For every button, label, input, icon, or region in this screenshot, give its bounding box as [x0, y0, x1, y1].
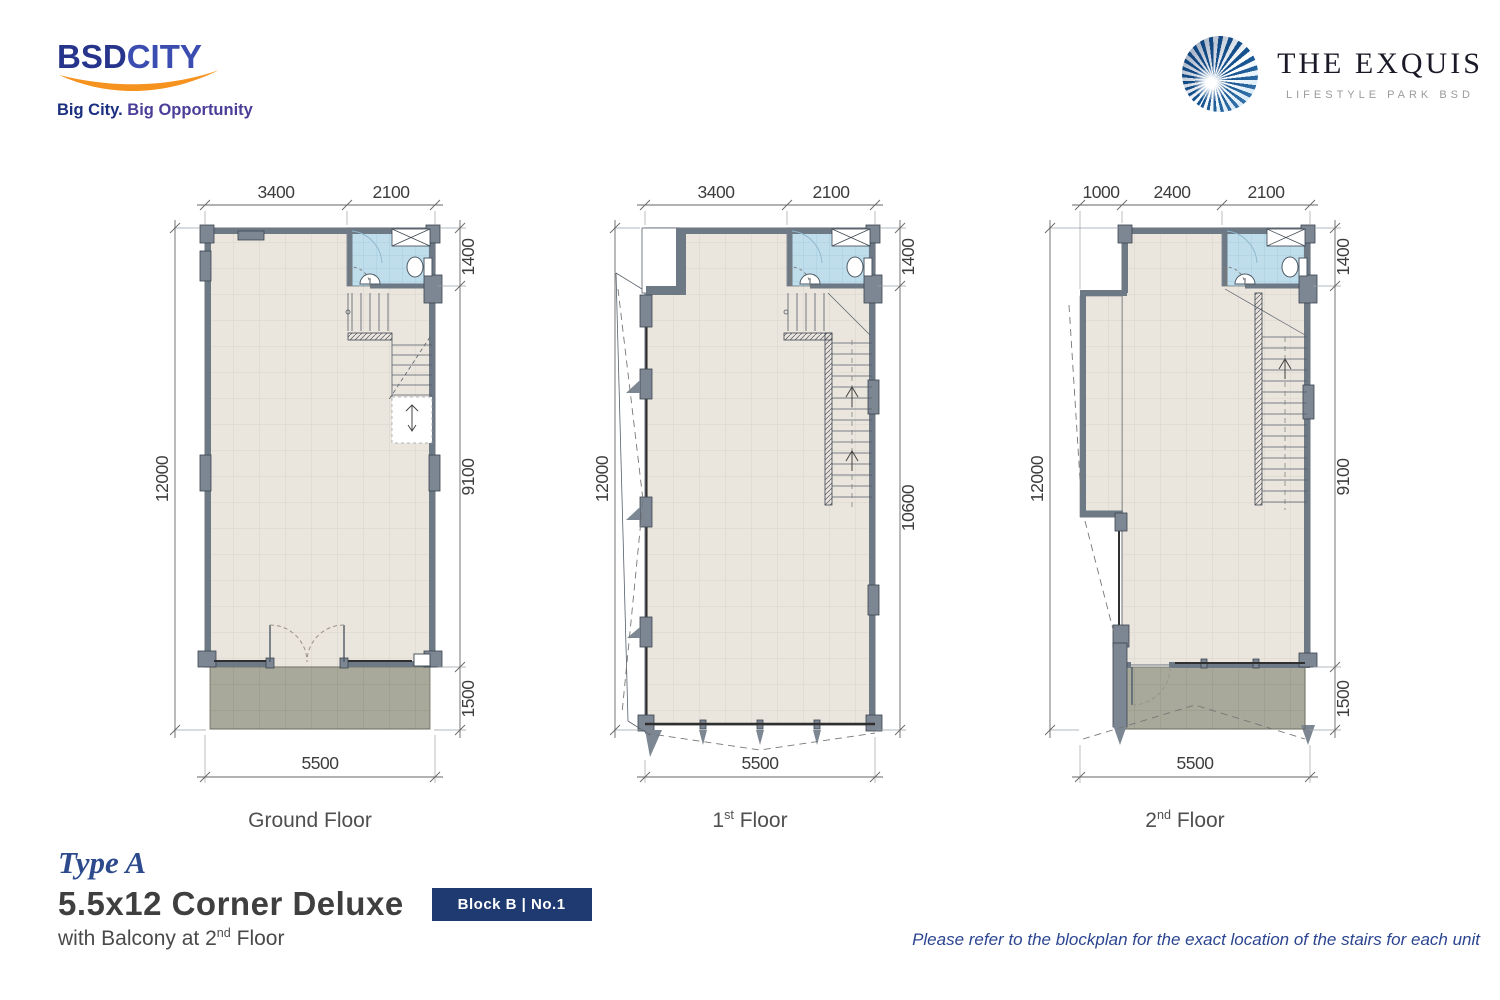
- dim-label: 1500: [1333, 680, 1353, 718]
- dim-label: 10600: [898, 484, 918, 531]
- toilet-icon: [407, 257, 432, 277]
- exquis-swirl-icon: [1182, 36, 1258, 112]
- dim-label: 9100: [1333, 458, 1353, 496]
- dim-label: 2100: [813, 182, 851, 202]
- shaft-icon: [1267, 229, 1305, 246]
- dim-label: 3400: [698, 182, 736, 202]
- main-room-floor: [1080, 296, 1122, 517]
- bsd-city-logo: BSDCITY Big City. Big Opportunity: [57, 40, 277, 120]
- first-floor-plan: 3400 2100 12000 1400 10600 5500: [570, 165, 930, 810]
- shaft-icon: [832, 229, 870, 246]
- dim-label: 5500: [302, 753, 340, 773]
- toilet-icon: [1282, 257, 1307, 277]
- exquis-title: THE EXQUIS: [1276, 47, 1484, 81]
- bsd-text: BSD: [57, 38, 127, 75]
- dim-label: 1500: [458, 680, 478, 718]
- dim-label: 9100: [458, 458, 478, 496]
- dim-label: 1000: [1083, 182, 1121, 202]
- dim-label: 3400: [258, 182, 296, 202]
- dim-label: 12000: [1027, 455, 1047, 502]
- page: BSDCITY Big City. Big Opportunity THE EX…: [0, 0, 1500, 1000]
- shaft-icon: [392, 229, 430, 246]
- dim-label: 1400: [898, 238, 918, 276]
- footnote: Please refer to the blockplan for the ex…: [900, 930, 1480, 950]
- unit-subtitle: with Balcony at 2nd Floor: [58, 926, 592, 951]
- unit-title: 5.5x12 Corner Deluxe: [58, 885, 404, 923]
- title-block: Type A 5.5x12 Corner Deluxe Block B | No…: [58, 845, 592, 951]
- main-room-floor: [1122, 228, 1310, 665]
- ground-floor-label: Ground Floor: [130, 808, 490, 833]
- second-floor-label: 2nd Floor: [1005, 808, 1365, 833]
- dim-label: 1400: [458, 238, 478, 276]
- exquis-text: THE EXQUIS LIFESTYLE PARK BSD: [1276, 47, 1484, 101]
- terrace: [210, 667, 430, 729]
- bsd-tagline: Big City. Big Opportunity: [57, 101, 277, 120]
- main-room-floor: [205, 228, 435, 667]
- block-number-badge: Block B | No.1: [432, 888, 592, 921]
- dim-label: 2100: [1248, 182, 1286, 202]
- ground-floor-plan: 3400 2100 12000 1400 9100 1500 5500: [130, 165, 490, 810]
- exquis-subtitle: LIFESTYLE PARK BSD: [1276, 89, 1484, 101]
- bsd-city-wordmark: BSDCITY: [57, 40, 277, 73]
- first-floor-plan-svg: 3400 2100 12000 1400 10600 5500: [570, 165, 930, 810]
- second-floor-plan: 1000 2400 2100 12000 1400 9100 1500 5500: [1005, 165, 1365, 810]
- city-text: CITY: [127, 38, 202, 75]
- dim-label: 1400: [1333, 238, 1353, 276]
- dim-label: 12000: [152, 455, 172, 502]
- utility-box: [414, 654, 430, 666]
- balcony-floor: [1125, 667, 1305, 729]
- dim-label: 5500: [1177, 753, 1215, 773]
- main-room-floor: [645, 228, 875, 725]
- dim-label: 12000: [592, 455, 612, 502]
- dim-label: 2400: [1154, 182, 1192, 202]
- toilet-icon: [847, 257, 872, 277]
- first-floor-label: 1st Floor: [570, 808, 930, 833]
- ground-floor-plan-svg: 3400 2100 12000 1400 9100 1500 5500: [130, 165, 490, 810]
- dim-label: 2100: [373, 182, 411, 202]
- exquis-logo: THE EXQUIS LIFESTYLE PARK BSD: [1182, 36, 1484, 112]
- void-opening: [642, 228, 686, 295]
- dim-label: 5500: [742, 753, 780, 773]
- second-floor-plan-svg: 1000 2400 2100 12000 1400 9100 1500 5500: [1005, 165, 1365, 810]
- unit-type-label: Type A: [58, 845, 592, 881]
